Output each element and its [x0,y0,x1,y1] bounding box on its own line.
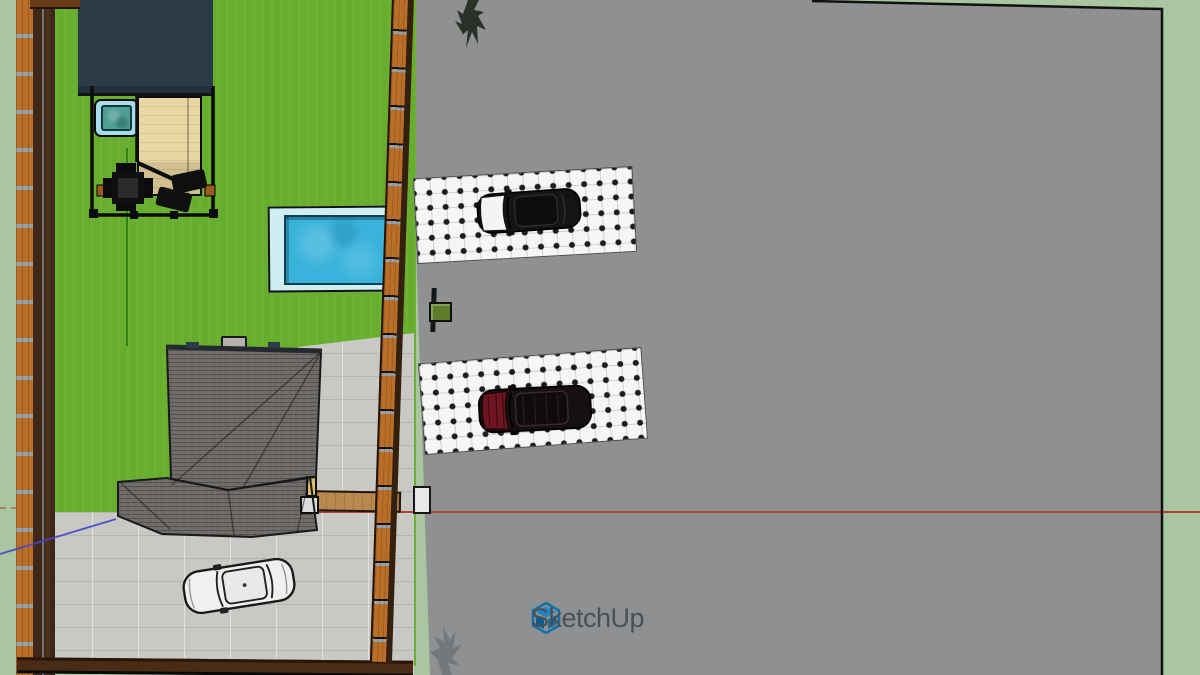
black-suv[interactable] [474,182,583,239]
top-fence[interactable] [30,0,80,9]
shed-building[interactable] [78,0,213,96]
watermark-label: SketchUp [531,603,644,634]
bottom-fence[interactable] [17,657,413,675]
chimney[interactable] [221,336,247,351]
house-roof-main[interactable] [160,330,330,500]
viewport-3d[interactable]: SketchUp [0,0,1200,675]
deck-seam [187,98,189,194]
side-door[interactable] [306,476,317,497]
mailbox[interactable] [429,302,452,322]
sketchup-watermark: SketchUp [531,600,731,636]
left-fence-metal-rail [42,0,44,675]
gate-post[interactable] [413,486,431,514]
left-fence-panels[interactable] [16,0,33,675]
wood-deck-lower [139,162,200,194]
dark-red-suv[interactable] [473,381,597,437]
green-axis-line [126,148,128,346]
utility-box[interactable] [300,496,319,514]
road[interactable] [405,0,1163,675]
left-fence-inner-rail [45,0,50,675]
shed-roof-trim [78,86,213,93]
left-fence-rail[interactable] [33,0,55,675]
swimming-pool[interactable] [284,215,392,285]
red-axis-line-dashed [0,507,17,509]
red-axis-line [296,511,1200,513]
hot-tub-water [101,105,132,131]
